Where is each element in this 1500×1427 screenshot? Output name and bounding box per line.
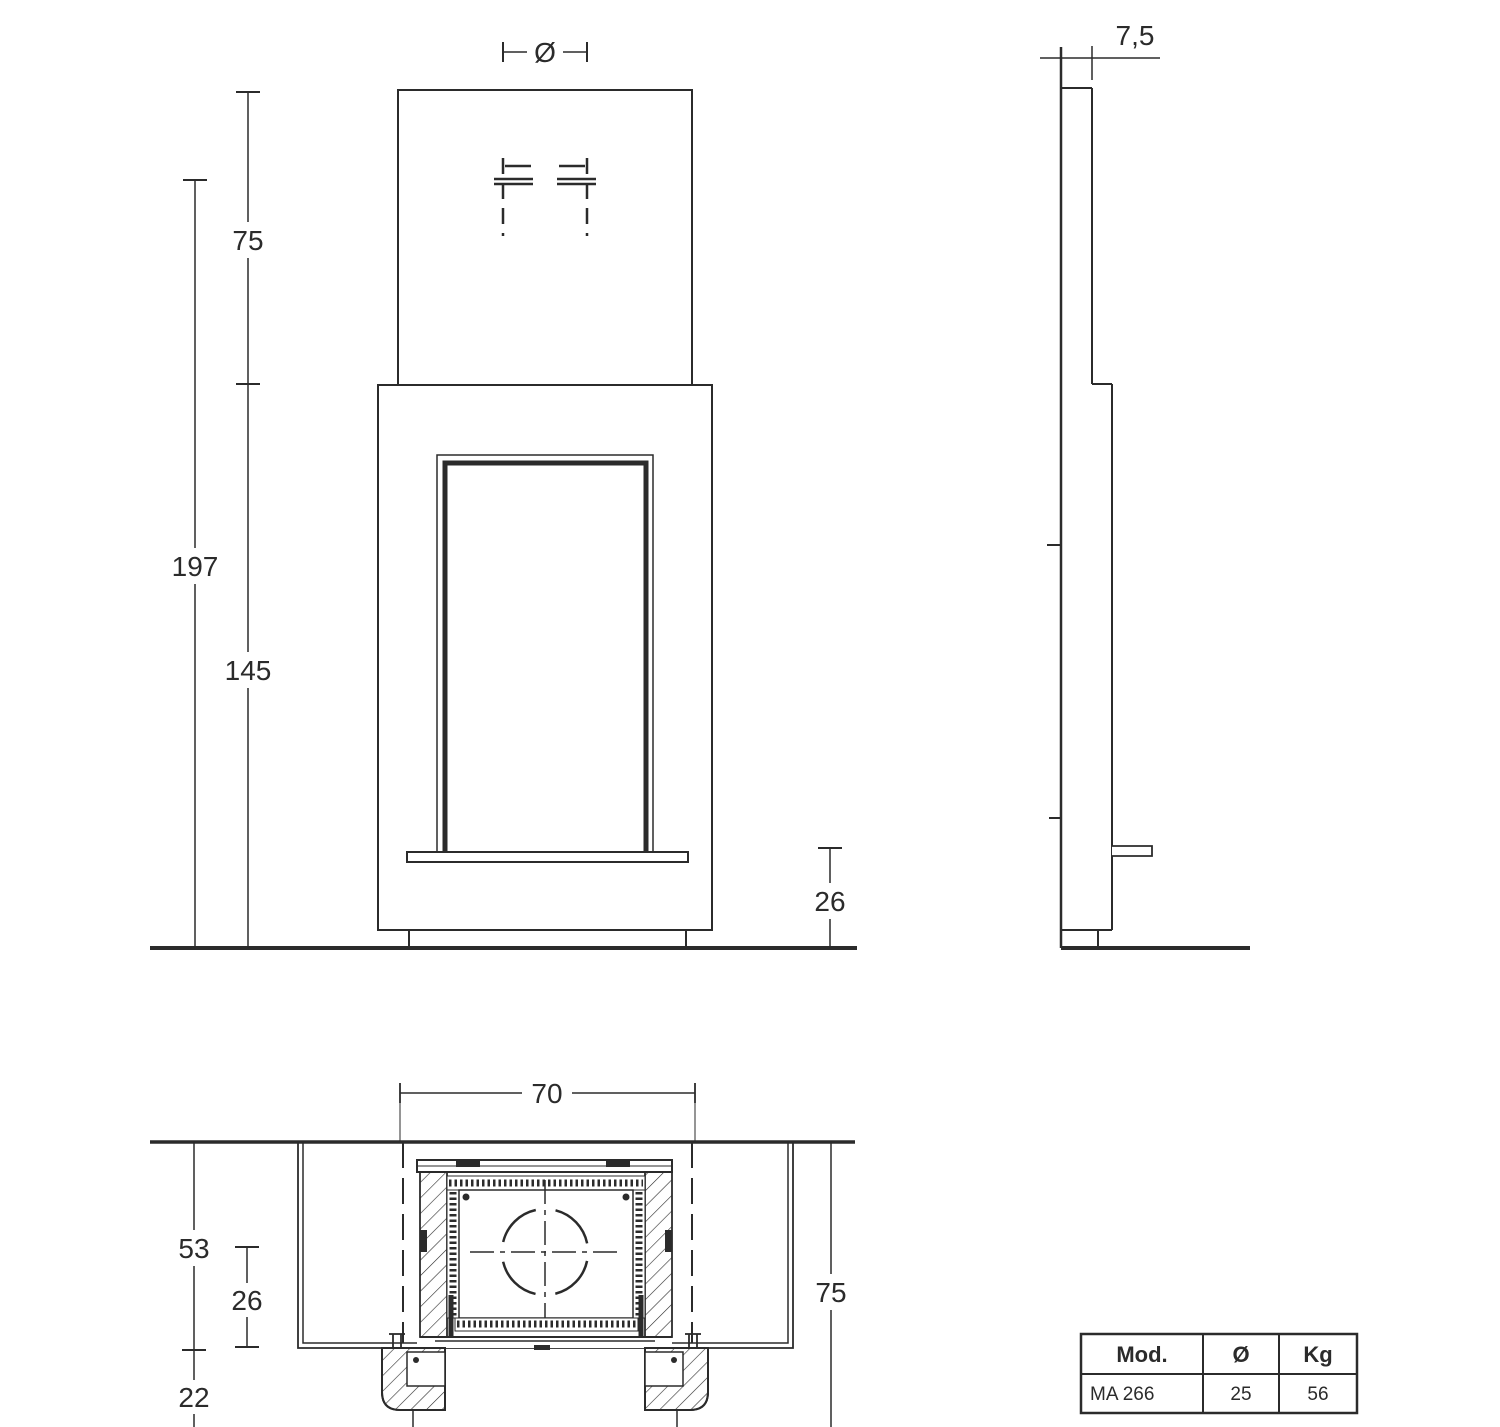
front-opening-outer xyxy=(437,455,653,852)
plan-chamber xyxy=(459,1190,633,1318)
front-body-height-label: 145 xyxy=(225,655,272,686)
spec-table: Mod. Ø Kg MA 266 25 56 xyxy=(1081,1334,1357,1413)
front-dim-flue-diameter: Ø xyxy=(503,37,587,68)
plan-firebox xyxy=(417,1158,672,1350)
plan-recess-depth-label: 53 xyxy=(178,1233,209,1264)
side-shelf xyxy=(1112,846,1152,856)
spec-table-cell-diameter: 25 xyxy=(1230,1384,1251,1405)
plan-view: 70 53 26 22 75 xyxy=(150,1077,855,1427)
plan-dim-hearth-depth: 26 xyxy=(225,1247,269,1347)
front-chimney-outline xyxy=(398,90,692,385)
plan-wall-left xyxy=(420,1172,447,1337)
plan-dim-front-offset: 22 xyxy=(170,1350,218,1427)
spec-table-cell-weight: 56 xyxy=(1307,1384,1328,1405)
plan-dim-total-depth: 75 xyxy=(807,1142,855,1427)
side-view: 7,5 xyxy=(1040,20,1250,948)
plan-foot-left xyxy=(382,1334,445,1427)
front-total-height-label: 197 xyxy=(172,551,219,582)
plan-foot-right xyxy=(645,1334,708,1427)
spec-table-cell-model: MA 266 xyxy=(1090,1384,1154,1405)
plan-total-depth-label: 75 xyxy=(815,1277,846,1308)
front-dim-total-height: 197 xyxy=(166,180,224,948)
front-flue-diameter-label: Ø xyxy=(534,37,556,68)
spec-table-header-diameter: Ø xyxy=(1232,1342,1249,1367)
fireplace-technical-drawing: Ø 197 75 145 26 xyxy=(0,0,1500,1427)
front-upper-height-label: 75 xyxy=(232,225,263,256)
front-opening-inner xyxy=(445,463,646,852)
spec-table-header-mod: Mod. xyxy=(1116,1342,1167,1367)
front-base-height-label: 26 xyxy=(814,886,845,917)
spec-table-header-weight: Kg xyxy=(1303,1342,1332,1367)
side-dim-top-depth: 7,5 xyxy=(1040,20,1160,80)
front-flue-collar xyxy=(494,166,596,184)
front-flue-hidden-lines xyxy=(503,158,587,236)
plan-opening-width-label: 70 xyxy=(531,1078,562,1109)
plan-clip-left xyxy=(456,1160,480,1167)
plan-dim-recess-depth: 53 xyxy=(168,1142,220,1350)
front-body-outline xyxy=(378,385,712,930)
plan-front-offset-label: 22 xyxy=(178,1382,209,1413)
front-dim-upper-and-body: 75 145 xyxy=(219,92,277,948)
plan-dim-opening-width: 70 xyxy=(400,1077,695,1142)
plan-hearth-depth-label: 26 xyxy=(231,1285,262,1316)
side-top-depth-label: 7,5 xyxy=(1116,20,1155,51)
drawing-canvas: Ø 197 75 145 26 xyxy=(0,0,1500,1427)
front-dim-base-height: 26 xyxy=(806,848,854,948)
front-view: Ø 197 75 145 26 xyxy=(150,37,857,948)
plan-wall-right xyxy=(645,1172,672,1337)
plan-clip-right xyxy=(606,1160,630,1167)
front-shelf xyxy=(407,852,688,862)
